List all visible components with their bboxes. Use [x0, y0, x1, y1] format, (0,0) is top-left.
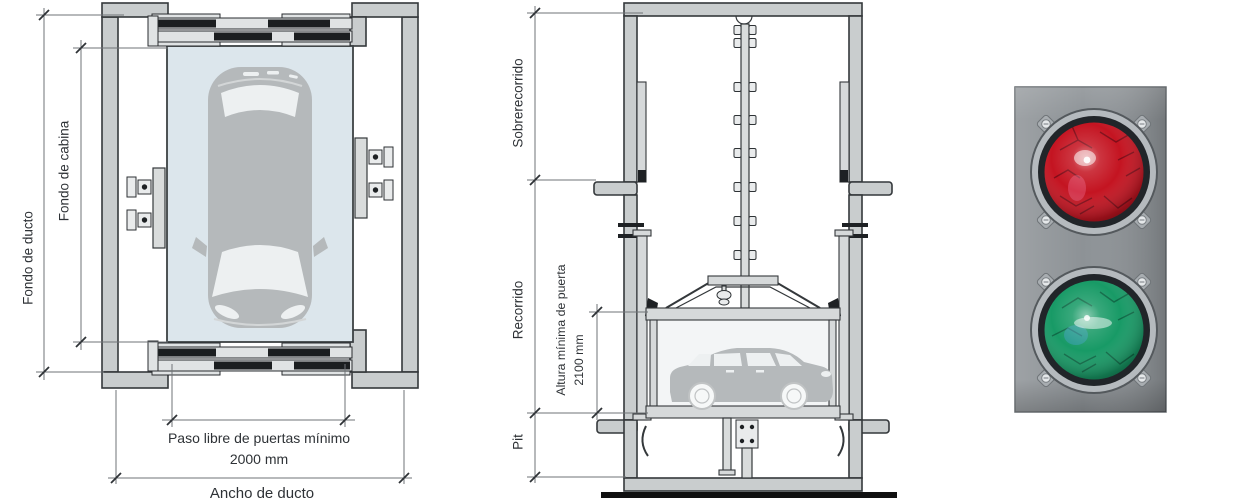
traffic-light-photo: [1015, 87, 1166, 412]
label-recorrido: Recorrido: [511, 281, 526, 340]
technical-diagram-canvas: Fondo de ducto Fondo de cabina Paso libr…: [0, 0, 1258, 500]
baseline-bar: [601, 492, 897, 498]
label-ancho-de-ducto: Ancho de ducto: [210, 485, 314, 500]
label-paso-libre-line1: Paso libre de puertas mínimo: [168, 430, 350, 446]
floor-slab-right: [849, 182, 892, 195]
pit-floor: [624, 478, 862, 491]
label-fondo-de-cabina: Fondo de cabina: [57, 120, 72, 221]
label-paso-libre-line2: 2000 mm: [230, 451, 288, 467]
label-pit: Pit: [511, 434, 526, 450]
cabin-section: [646, 308, 840, 418]
label-altura-minima: Altura mínima de puerta: [554, 264, 568, 395]
floor-slab-left: [594, 182, 637, 195]
upper-landing-door-right: [840, 82, 849, 182]
red-light: [1031, 109, 1157, 235]
red-lens-shade: [1045, 123, 1144, 222]
screenshot-stage: Fondo de ducto Fondo de cabina Paso libr…: [0, 0, 1258, 500]
upper-landing-door-left: [637, 82, 646, 182]
label-sobrerecorrido: Sobrerecorrido: [511, 58, 526, 147]
label-fondo-de-ducto: Fondo de ducto: [21, 211, 36, 305]
car-top-view: [192, 67, 328, 328]
green-lens-shade: [1045, 281, 1144, 380]
green-light: [1031, 267, 1157, 393]
label-altura-valor: 2100 mm: [572, 334, 586, 385]
